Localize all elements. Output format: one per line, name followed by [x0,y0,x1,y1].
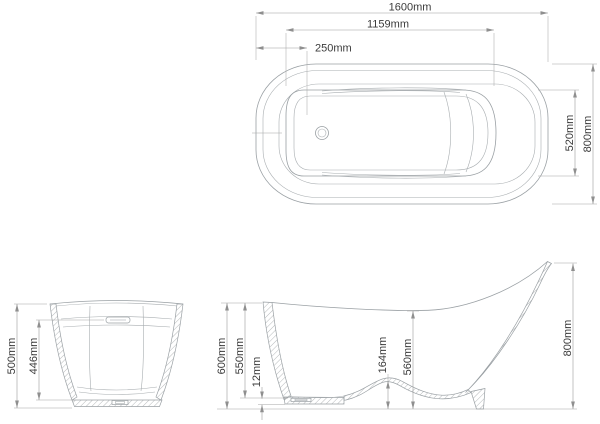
dim-opening-width-label: 520mm [564,115,576,152]
side-back-wall-section [466,262,552,393]
side-view: 600mm 550mm 12mm 164mm 560mm 800mm [216,262,577,421]
basin-opening [286,90,496,176]
end-wall-section [50,304,77,400]
dim-side-rim-height-label: 600mm [216,338,228,375]
drain-icon [316,127,329,140]
end-interior-line [63,325,170,327]
end-rim-line [56,303,177,306]
side-drain-detail [291,398,311,401]
end-wall-section [156,304,183,400]
dim-opening-length-label: 1159mm [367,19,409,31]
ledge-line [322,173,460,176]
end-view: 500mm 446mm [6,301,183,409]
backrest-contour [444,92,451,174]
dim-sump-height-label: 164mm [377,337,389,374]
side-back-foot-section [471,389,485,410]
dim-center-depth-label: 560mm [402,339,414,376]
end-floor-line [77,387,157,390]
side-floor-section [344,378,471,400]
end-floor-line [79,392,155,395]
top-view: 1600mm 1159mm 250mm 520mm 800mm [252,2,597,205]
backrest-contour [466,94,474,172]
dim-base-thickness-label: 12mm [251,357,263,388]
tub-rim-inner-edge [279,84,535,184]
waterline [294,96,488,170]
end-drain-detail [112,401,128,405]
drain-icon-inner [318,129,326,137]
drawing-canvas: 1600mm 1159mm 250mm 520mm 800mm [0,0,600,424]
end-interior-line [89,306,91,391]
bathtub-technical-drawing: 1600mm 1159mm 250mm 520mm 800mm [0,0,600,424]
tub-outline-rim [263,71,541,198]
end-interior-line [141,306,144,391]
side-left-wall-section [263,302,291,400]
dim-end-inner-height-label: 446mm [28,338,40,375]
side-rim-curve [272,262,548,311]
dim-side-inner-depth-label: 550mm [234,338,246,375]
dim-drain-offset-label: 250mm [315,43,352,55]
dim-overall-width-label: 800mm [582,116,594,153]
dim-backrest-height-label: 800mm [562,320,574,357]
dim-overall-length-label: 1600mm [389,2,432,14]
dim-end-overall-height-label: 500mm [6,338,18,375]
end-rim-line [50,301,183,305]
ledge-line [322,91,460,94]
